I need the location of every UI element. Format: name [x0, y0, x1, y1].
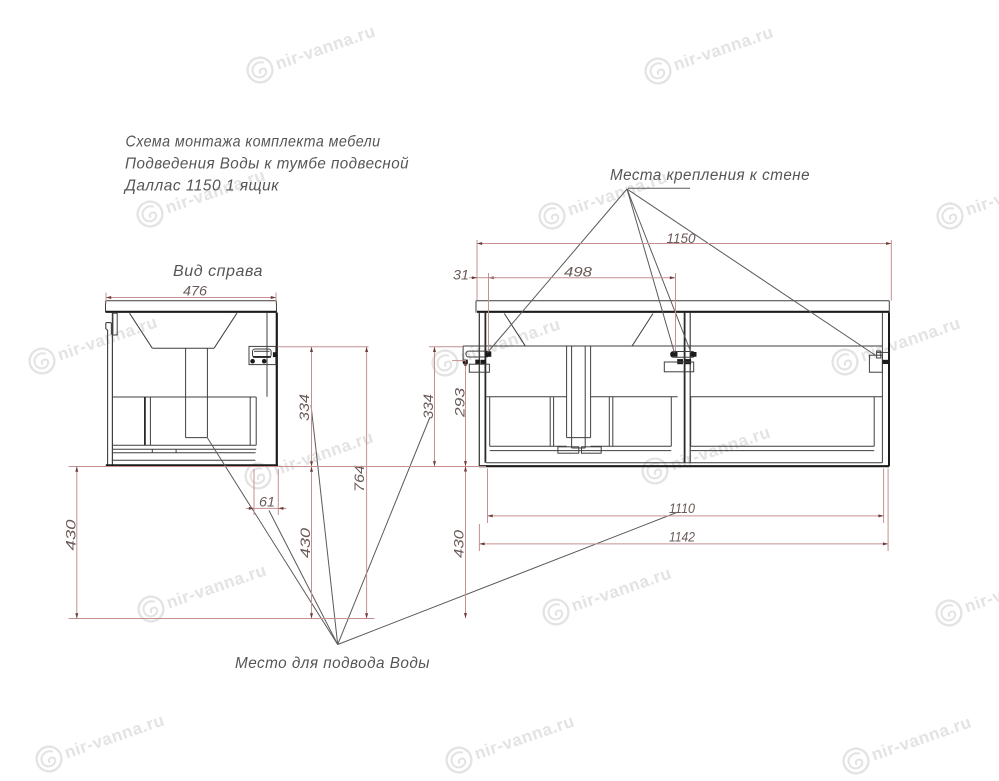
svg-text:Места крепления к стене: Места крепления к стене — [610, 167, 810, 184]
svg-text:1142: 1142 — [669, 530, 695, 546]
svg-text:Даллас 1150 1 ящик: Даллас 1150 1 ящик — [123, 177, 280, 194]
svg-text:430: 430 — [298, 528, 314, 558]
svg-text:430: 430 — [452, 530, 468, 558]
svg-text:61: 61 — [259, 495, 275, 511]
svg-text:Подведения Воды к тумбе по: Подведения Воды к тумбе подвесной — [125, 156, 409, 173]
svg-text:31: 31 — [453, 268, 469, 284]
svg-text:Схема монтажа комплекта меб: Схема монтажа комплекта мебели — [126, 134, 381, 151]
svg-text:334: 334 — [297, 394, 313, 421]
svg-text:Место для подвода Воды: Место для подвода Воды — [235, 655, 430, 672]
svg-text:764: 764 — [352, 465, 368, 492]
svg-text:1110: 1110 — [669, 501, 695, 517]
svg-text:Вид справа: Вид справа — [173, 263, 263, 280]
svg-text:430: 430 — [64, 519, 80, 550]
svg-text:476: 476 — [183, 283, 207, 299]
svg-text:1150: 1150 — [667, 231, 696, 247]
svg-text:334: 334 — [421, 394, 437, 419]
svg-text:293: 293 — [453, 388, 469, 418]
